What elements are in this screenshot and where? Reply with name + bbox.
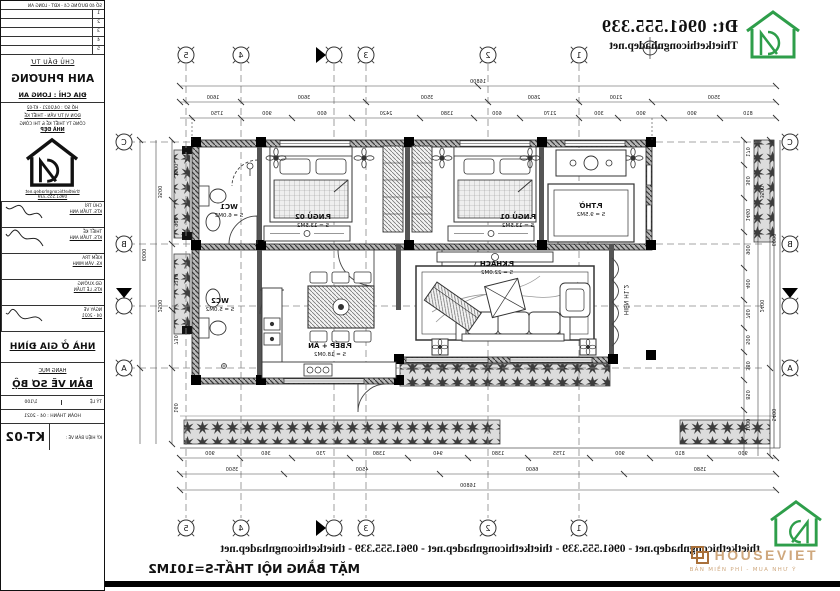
worship-room-furniture: [548, 150, 634, 242]
dim-bottom-total: 16800: [460, 483, 476, 489]
signature-row: KIỂM TRAKS. VĂN MINH: [1, 254, 104, 280]
room-area: S = 22.0M2: [481, 270, 513, 276]
svg-text:600: 600: [317, 111, 327, 117]
svg-text:3500: 3500: [226, 467, 239, 473]
client-address: ĐỊA CHỈ : LONG AN: [3, 91, 102, 99]
svg-text:2170: 2170: [544, 111, 557, 117]
svg-text:6000: 6000: [770, 234, 776, 247]
svg-text:900: 900: [738, 451, 748, 457]
svg-text:1380: 1380: [492, 451, 505, 457]
houseviet-watermark: HOUSEVIET BẢN MIỀN PHÍ - MUA NHƯ Ý: [690, 545, 818, 573]
room-label-ngu01: P.NGỦ 01: [500, 211, 536, 221]
ceiling-fan-icon: [354, 148, 374, 168]
sheet-code: KT-02: [1, 430, 49, 444]
svg-text:3500: 3500: [421, 95, 434, 101]
svg-text:400: 400: [744, 279, 750, 289]
watermark-brand: HOUSEVIET: [715, 547, 818, 563]
svg-text:2420: 2420: [380, 111, 393, 117]
client-name: ANH PHƯƠNG: [3, 73, 102, 85]
drawing-title: MẶT BẰNG NỘI THẤT-S=101M2: [110, 561, 360, 576]
svg-text:6600: 6600: [526, 467, 539, 473]
svg-text:3110: 3110: [172, 274, 178, 287]
grid-row-label: A: [787, 364, 793, 373]
dim-top-total: 16800: [470, 79, 486, 85]
room-label-wc2: WC2: [211, 297, 229, 305]
wc2-toilet: [199, 318, 226, 338]
room-label-khach: P.KHÁCH: [480, 259, 514, 268]
svg-text:1000: 1000: [744, 419, 750, 432]
revision-row: 4: [1, 37, 104, 46]
firm-label: ĐƠN VỊ TƯ VẤN - THIẾT KẾ: [2, 113, 103, 118]
svg-text:900: 900: [262, 111, 272, 117]
svg-text:300: 300: [594, 111, 604, 117]
bed-1: [454, 147, 536, 222]
date-line: HOÀN THÀNH : 04 - 2021: [1, 414, 104, 419]
svg-text:1750: 1750: [211, 111, 224, 117]
kitchen-furniture: [262, 272, 396, 378]
stage-block: HẠNG MỤC BẢN VẼ SƠ BỘ: [1, 363, 104, 396]
svg-text:2600: 2600: [528, 95, 541, 101]
grid-col-label: 2: [485, 51, 490, 60]
sign-value: KS. VĂN MINH: [48, 261, 102, 267]
svg-text:1460: 1460: [744, 209, 750, 222]
grid-row-label: C: [121, 138, 127, 147]
room-area: S = 6.0M2: [215, 213, 244, 219]
room-area: S = 9.5M2: [577, 212, 606, 218]
revision-number: 1: [92, 10, 104, 18]
svg-text:2500: 2500: [156, 300, 162, 313]
date-row: HOÀN THÀNH : 04 - 2021: [1, 410, 104, 424]
svg-text:2100: 2100: [610, 95, 623, 101]
svg-text:1500: 1500: [172, 164, 178, 177]
grid-row-label: C: [787, 138, 793, 147]
svg-text:170: 170: [744, 147, 750, 157]
svg-text:5400: 5400: [770, 409, 776, 422]
svg-text:810: 810: [743, 111, 753, 117]
sign-value: 04 - 2021: [48, 313, 102, 319]
sign-value: KTS. TUẤN ANH: [48, 235, 102, 241]
titleblock-address: SỐ 40 ĐƯỜNG C4 - KĐT - LONG AN: [1, 1, 104, 10]
svg-text:810: 810: [675, 451, 685, 457]
room-area: S = 13.5M2: [297, 223, 329, 229]
revision-row: 2: [1, 19, 104, 28]
svg-text:3500: 3500: [156, 186, 162, 199]
signature-cell: [1, 254, 46, 279]
plant-pot-icon: [580, 339, 596, 355]
floor-plan-page: Đt: 0961.555.339 Thietkethicongnhadep.ne…: [0, 0, 840, 591]
svg-text:4500: 4500: [356, 467, 369, 473]
room-label-ngu02: P.NGỦ 02: [295, 211, 331, 221]
dining-table: [308, 272, 374, 342]
sheet-label: KÝ HIỆU BẢN VẼ :: [49, 424, 104, 450]
svg-text:360: 360: [261, 451, 271, 457]
svg-text:730: 730: [316, 451, 326, 457]
svg-text:760: 760: [744, 309, 750, 319]
client-block: CHỦ ĐẦU TƯ ANH PHƯƠNG ĐỊA CHỈ : LONG AN: [1, 55, 104, 103]
watermark-house-logo-icon: [762, 498, 830, 548]
grid-row-label: A: [121, 364, 127, 373]
svg-text:1380: 1380: [373, 451, 386, 457]
porch-label: HIÊN H1.2: [622, 285, 630, 316]
sign-value: KTS. LÊ TUẤN: [48, 287, 102, 293]
firm-house-logo-icon: [25, 136, 81, 188]
svg-text:1600: 1600: [207, 95, 220, 101]
grid-col-label: 4: [238, 51, 243, 60]
project-type: NHÀ Ở GIA ĐÌNH: [1, 332, 104, 363]
revision-number: 3: [92, 28, 104, 36]
signature-row: THIẾT KẾKTS. TUẤN ANH: [1, 228, 104, 254]
revision-row: 3: [1, 28, 104, 37]
svg-text:730: 730: [172, 335, 178, 345]
signature-row: CHỦ TRÌKTS. TUẤN ANH: [1, 202, 104, 228]
drawing-stage: BẢN VẼ SƠ BỘ: [3, 379, 102, 390]
revision-row: 1: [1, 10, 104, 19]
svg-text:500: 500: [744, 335, 750, 345]
room-label-wc1: WC1: [220, 203, 238, 211]
record-line: HỒ SƠ : 04/2021 - KT-02: [2, 105, 103, 110]
shower-head-icon: [247, 163, 253, 169]
grid-col-label: 3: [363, 51, 368, 60]
grid-col-label: 4: [238, 524, 243, 533]
grid-col-label: 5: [183, 51, 188, 60]
ceiling-fan-icon: [432, 148, 452, 168]
grid-col-label: 5: [183, 524, 188, 533]
category-label: HẠNG MỤC: [3, 368, 102, 374]
room-area: S = 5.0M2: [206, 307, 235, 313]
grid-col-label: 1: [576, 524, 581, 533]
armchair: [560, 283, 590, 317]
svg-text:1380: 1380: [441, 111, 454, 117]
grid-row-label: B: [121, 240, 127, 249]
signature-cell: [1, 306, 46, 331]
compass-icon: [639, 37, 661, 59]
svg-text:380: 380: [744, 361, 750, 371]
signature-row: NGÀY VẼ04 - 2021: [1, 306, 104, 332]
room-label-bep: P.BẾP + ĂN: [308, 340, 352, 350]
svg-text:900: 900: [744, 245, 750, 255]
room-area: S = 13.5M2: [502, 223, 534, 229]
firm-name: CÔNG TY THIẾT KẾ & THI CÔNG: [2, 121, 103, 126]
svg-text:900: 900: [636, 111, 646, 117]
svg-text:1755: 1755: [553, 451, 566, 457]
svg-text:160: 160: [172, 403, 178, 413]
svg-text:3500: 3500: [708, 95, 721, 101]
svg-text:1580: 1580: [694, 467, 707, 473]
revision-number: 4: [92, 37, 104, 45]
svg-text:850: 850: [744, 390, 750, 400]
signature-cell: [1, 228, 46, 253]
revision-number: 2: [92, 19, 104, 27]
svg-text:3600: 3600: [298, 95, 311, 101]
houseviet-logo-icon: [690, 545, 710, 565]
sheet-row: KÝ HIỆU BẢN VẼ : KT-02: [1, 424, 104, 450]
grid-col-label: 3: [363, 524, 368, 533]
title-block: SỐ 40 ĐƯỜNG C4 - KĐT - LONG AN 1 2 3 4 5…: [0, 0, 105, 591]
stove: [304, 364, 332, 376]
floor-plan-svg: 1 2 3 4 5 1 2 3 4 5 C B A C B A: [105, 0, 840, 591]
svg-text:940: 940: [433, 451, 443, 457]
svg-text:6000: 6000: [140, 249, 146, 262]
svg-text:360: 360: [744, 176, 750, 186]
firm-brand: NHÀ ĐẸP: [2, 128, 103, 133]
svg-text:900: 900: [172, 217, 178, 227]
svg-text:900: 900: [205, 451, 215, 457]
revision-number: 5: [92, 46, 104, 54]
bed-2: [270, 147, 352, 222]
watermark-tagline: BẢN MIỀN PHÍ - MUA NHƯ Ý: [690, 567, 818, 573]
grid-col-label: 2: [485, 524, 490, 533]
firm-block: HỒ SƠ : 04/2021 - KT-02 ĐƠN VỊ TƯ VẤN - …: [1, 103, 104, 202]
sign-value: KTS. TUẤN ANH: [48, 209, 102, 215]
scale-value: 1/100: [1, 400, 61, 405]
grid-row-label: B: [787, 240, 793, 249]
grid-col-label: 1: [576, 51, 581, 60]
plant-pot-icon: [432, 339, 448, 355]
footer-marquee: thietkethicongnhadep.net - 0961.555.339 …: [105, 543, 760, 555]
revision-row: 5: [1, 46, 104, 55]
bathroom-fixtures: [199, 163, 253, 369]
bottom-border-bar: [105, 581, 840, 587]
client-label: CHỦ ĐẦU TƯ: [3, 59, 102, 66]
svg-text:600: 600: [492, 111, 502, 117]
svg-text:900: 900: [615, 451, 625, 457]
svg-text:900: 900: [687, 111, 697, 117]
svg-text:2400: 2400: [758, 300, 764, 313]
signature-cell: [1, 202, 46, 227]
svg-text:3500: 3500: [758, 186, 764, 199]
signature-row: GĐ.XƯỞNGKTS. LÊ TUẤN: [1, 280, 104, 306]
firm-phone: 0961.555.339: [2, 194, 103, 199]
scale-label: TỶ LỆ: [61, 400, 104, 405]
mirrored-drawing-layer: Đt: 0961.555.339 Thietkethicongnhadep.ne…: [0, 0, 840, 591]
room-area: S = 18.0M2: [314, 352, 346, 358]
scale-row: TỶ LỆ 1/100: [1, 396, 104, 410]
room-label-tho: P.THỜ: [579, 201, 602, 210]
signature-cell: [1, 280, 46, 305]
